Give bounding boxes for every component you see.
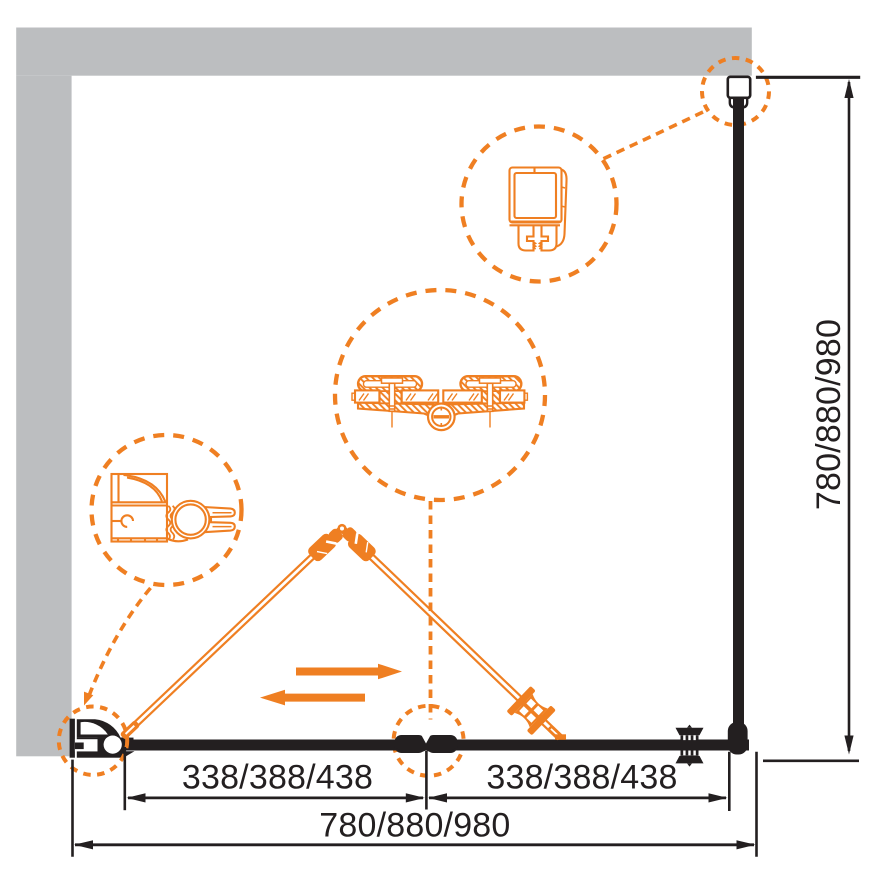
svg-text:338/388/438: 338/388/438 bbox=[182, 759, 373, 797]
svg-text:780/880/980: 780/880/980 bbox=[810, 319, 848, 510]
svg-text:338/388/438: 338/388/438 bbox=[486, 759, 677, 797]
svg-text:780/880/980: 780/880/980 bbox=[319, 807, 510, 845]
